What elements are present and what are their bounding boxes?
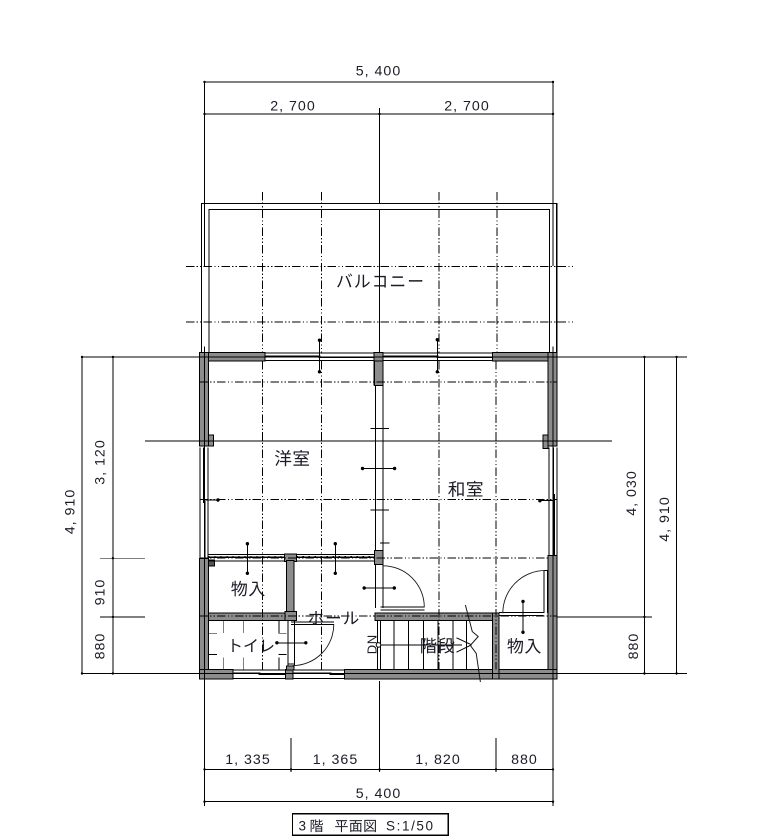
svg-text:910: 910 bbox=[93, 579, 109, 606]
svg-text:4, 910: 4, 910 bbox=[63, 489, 79, 534]
svg-text:1, 335: 1, 335 bbox=[225, 752, 270, 768]
svg-text:880: 880 bbox=[93, 633, 109, 660]
svg-text:880: 880 bbox=[511, 752, 538, 768]
svg-text:880: 880 bbox=[626, 633, 642, 660]
svg-text:1, 365: 1, 365 bbox=[313, 752, 358, 768]
svg-text:3: 3 bbox=[299, 819, 308, 834]
svg-text:3, 120: 3, 120 bbox=[93, 439, 109, 484]
svg-text:1, 820: 1, 820 bbox=[415, 752, 460, 768]
svg-text:4, 910: 4, 910 bbox=[657, 496, 673, 541]
svg-text:S:1/50: S:1/50 bbox=[386, 819, 435, 834]
svg-text:5, 400: 5, 400 bbox=[356, 786, 401, 802]
svg-text:2, 700: 2, 700 bbox=[270, 99, 315, 115]
svg-text:DN: DN bbox=[365, 634, 380, 654]
svg-text:4, 030: 4, 030 bbox=[624, 470, 640, 515]
svg-text:2, 700: 2, 700 bbox=[444, 99, 489, 115]
svg-text:5, 400: 5, 400 bbox=[356, 64, 401, 80]
